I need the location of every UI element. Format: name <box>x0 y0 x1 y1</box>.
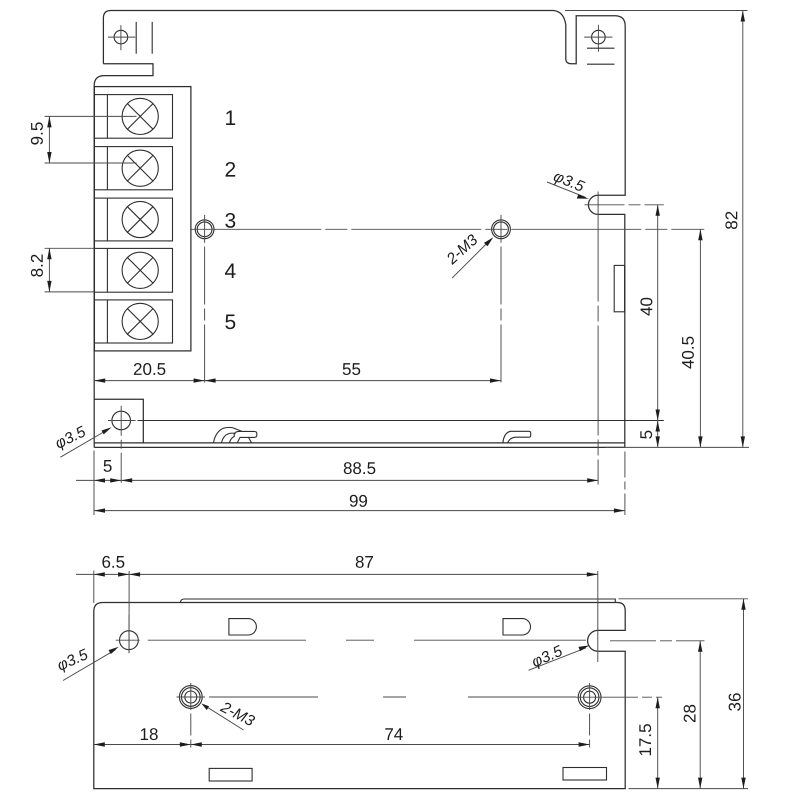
svg-text:5: 5 <box>637 430 656 439</box>
svg-text:82: 82 <box>722 211 741 230</box>
svg-text:36: 36 <box>725 693 744 712</box>
svg-text:17.5: 17.5 <box>636 723 655 756</box>
svg-text:4: 4 <box>224 260 236 283</box>
svg-text:20.5: 20.5 <box>133 360 166 379</box>
svg-text:5: 5 <box>103 457 112 476</box>
svg-text:6.5: 6.5 <box>101 553 125 572</box>
svg-text:8.2: 8.2 <box>28 254 47 278</box>
svg-text:88.5: 88.5 <box>343 459 376 478</box>
svg-text:1: 1 <box>224 107 236 130</box>
svg-text:40: 40 <box>637 297 656 316</box>
svg-text:55: 55 <box>342 360 361 379</box>
svg-text:74: 74 <box>384 725 403 744</box>
svg-text:87: 87 <box>355 553 374 572</box>
svg-text:18: 18 <box>140 725 159 744</box>
svg-text:2: 2 <box>224 159 236 182</box>
svg-text:5: 5 <box>224 311 236 334</box>
svg-text:9.5: 9.5 <box>28 122 47 146</box>
svg-text:99: 99 <box>349 492 368 511</box>
svg-text:28: 28 <box>680 704 699 723</box>
svg-text:40.5: 40.5 <box>679 336 698 369</box>
